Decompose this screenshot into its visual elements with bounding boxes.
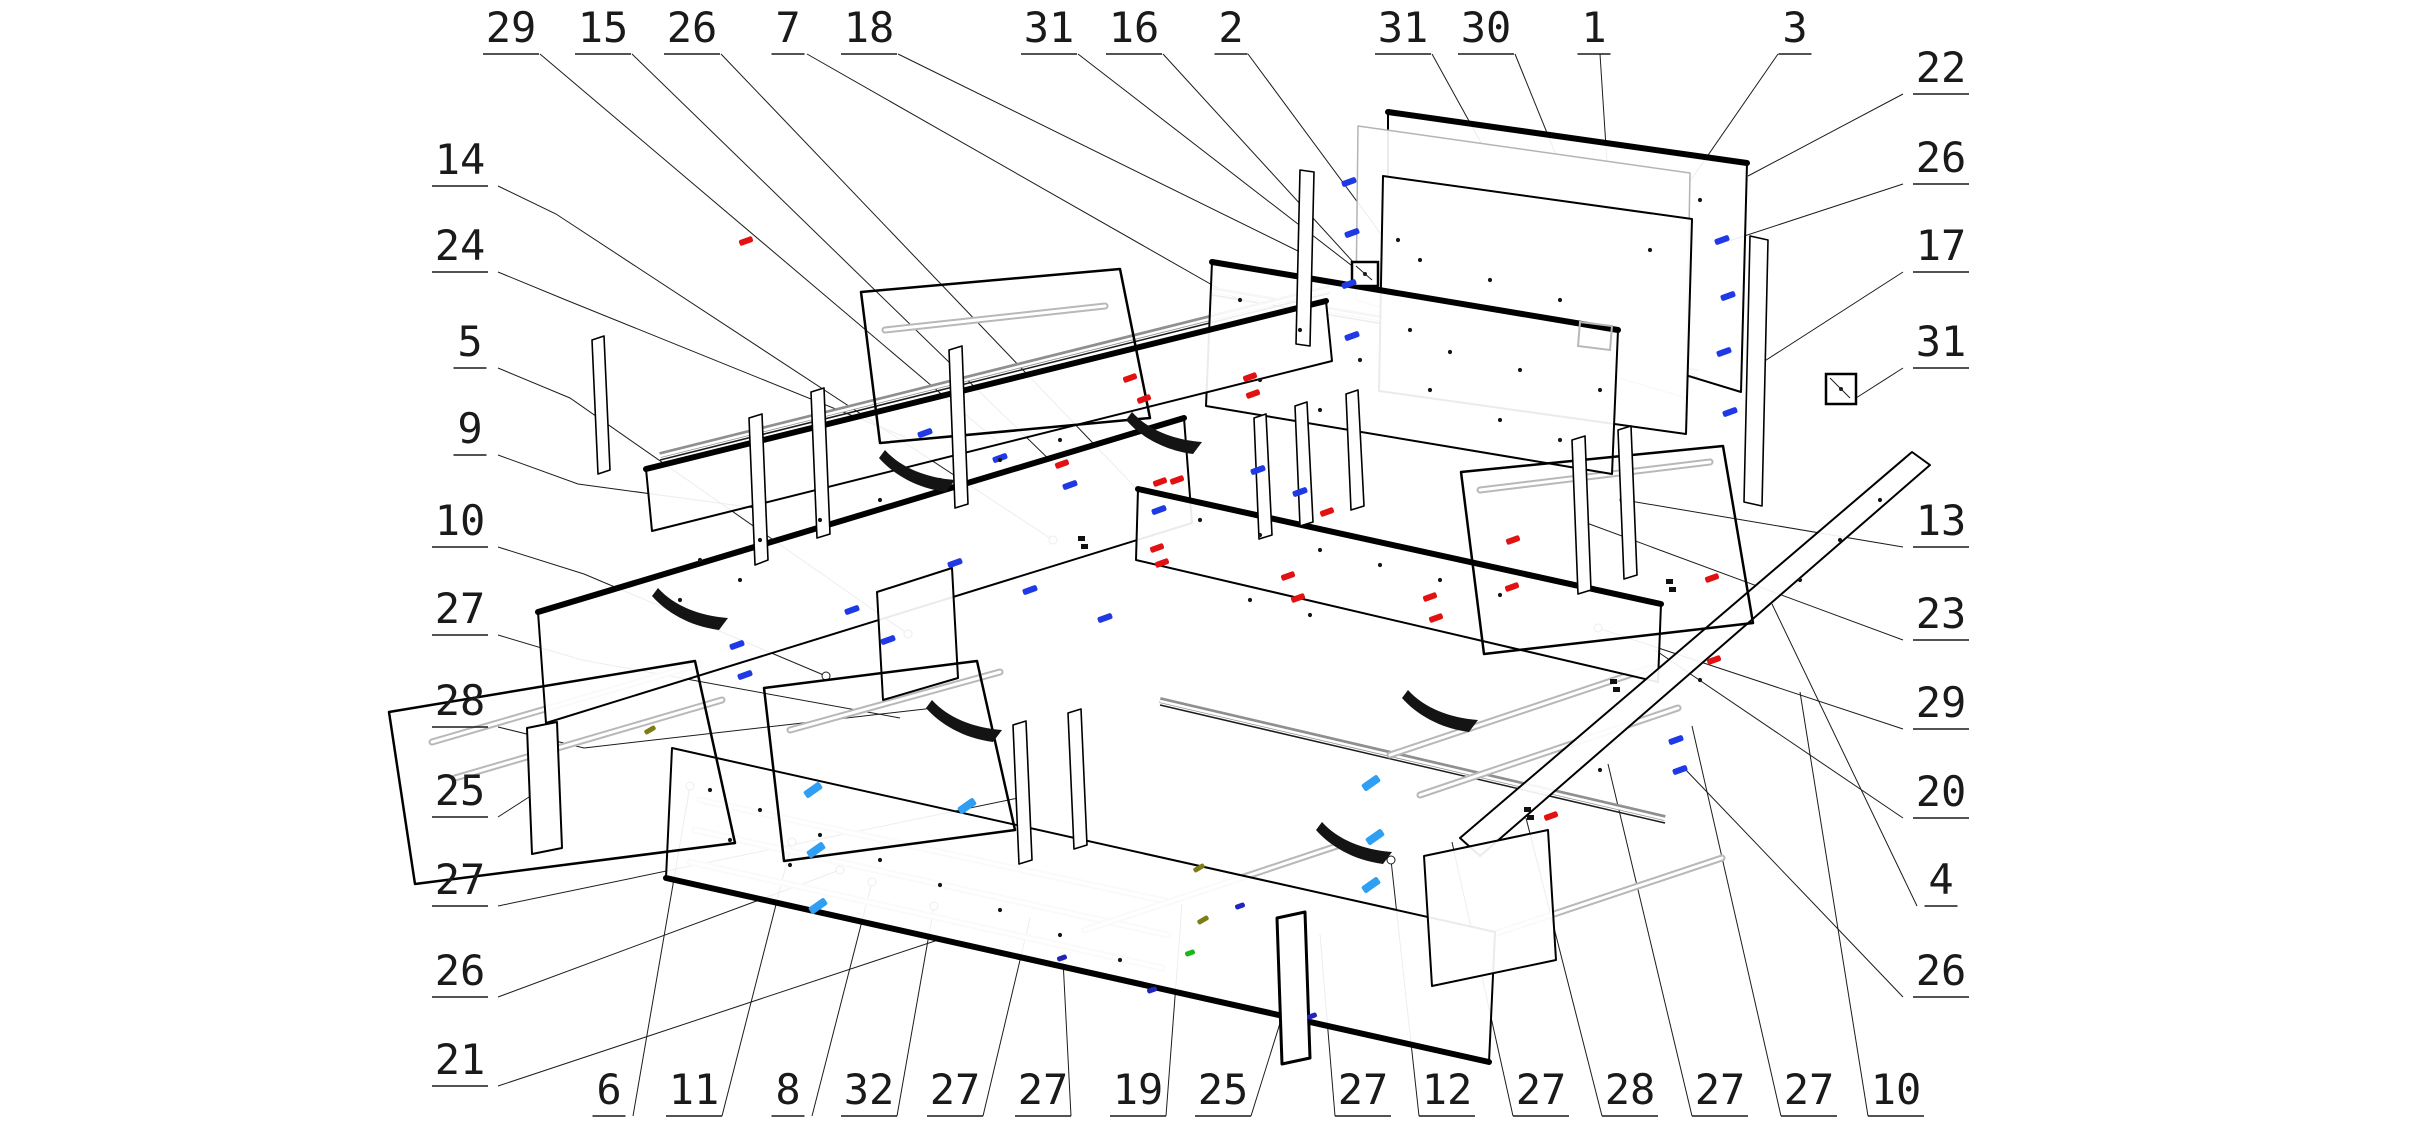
screw-hole-dot xyxy=(1408,328,1412,332)
screw-hole-dot xyxy=(998,908,1002,912)
part-number-label-27: 27 xyxy=(1695,1065,1746,1114)
clip-red xyxy=(1704,573,1719,583)
screw-hole-dot xyxy=(1558,298,1562,302)
screw-hole-dot xyxy=(1438,578,1442,582)
right-low-panel xyxy=(1424,830,1556,986)
leader-line-31 xyxy=(1856,368,1903,398)
screw-hole-dot xyxy=(758,808,762,812)
inner-divider-panel xyxy=(877,568,958,700)
part-number-label-11: 11 xyxy=(669,1065,720,1114)
part-number-label-9: 9 xyxy=(457,404,482,453)
leader-line-10 xyxy=(1800,692,1868,1116)
screw-hole-dot xyxy=(878,498,882,502)
side-strip-left xyxy=(527,722,562,854)
clip-blue xyxy=(1097,613,1113,624)
leader-line-22 xyxy=(1748,94,1903,176)
part-number-label-31: 31 xyxy=(1024,3,1075,52)
screw-hole-dot xyxy=(1318,408,1322,412)
screw-hole-dot xyxy=(1308,613,1312,617)
leader-line-18 xyxy=(898,54,1300,252)
bracket-plate-hole xyxy=(1839,387,1843,391)
screw-hole-dot xyxy=(1058,438,1062,442)
leader-end-circle xyxy=(1387,856,1395,864)
part-number-label-27: 27 xyxy=(1018,1065,1069,1114)
screw-hole-dot xyxy=(1598,768,1602,772)
clip-blue xyxy=(1341,177,1357,188)
screw-hole-dot xyxy=(1838,538,1842,542)
part-number-label-25: 25 xyxy=(1198,1065,1249,1114)
screw-hole-dot xyxy=(1798,578,1802,582)
part-number-label-3: 3 xyxy=(1782,3,1807,52)
part-number-label-26: 26 xyxy=(1916,946,1967,995)
screw-hole-dot xyxy=(1118,958,1122,962)
part-number-label-12: 12 xyxy=(1422,1065,1473,1114)
clip-light-blue xyxy=(1361,876,1381,893)
clip-light-blue xyxy=(1365,828,1385,845)
fitting-pair xyxy=(1524,807,1531,812)
part-number-label-7: 7 xyxy=(775,3,800,52)
screw-hole-dot xyxy=(1198,518,1202,522)
fitting-pair xyxy=(1527,815,1534,820)
part-number-label-20: 20 xyxy=(1916,767,1967,816)
screw-hole-dot xyxy=(728,838,732,842)
screw-hole-dot xyxy=(938,883,942,887)
clip-light-blue xyxy=(957,797,977,814)
screw-hole-dot xyxy=(1488,278,1492,282)
part-number-label-2: 2 xyxy=(1218,3,1243,52)
part-number-label-25: 25 xyxy=(435,766,486,815)
clip-red xyxy=(1505,535,1520,545)
rail-band-edge xyxy=(1160,705,1665,823)
fitting-pair xyxy=(1666,579,1673,584)
screw-hole-dot xyxy=(998,458,1002,462)
part-number-label-10: 10 xyxy=(1871,1065,1922,1114)
screw-hole-dot xyxy=(1298,328,1302,332)
screw-hole-dot xyxy=(1378,563,1382,567)
part-number-label-26: 26 xyxy=(667,3,718,52)
clip-blue xyxy=(1672,765,1688,776)
divider-strip xyxy=(1618,426,1637,579)
screw-hole-dot xyxy=(1498,418,1502,422)
screw-hole-dot xyxy=(738,578,742,582)
screw-hole-dot xyxy=(1418,258,1422,262)
part-number-label-27: 27 xyxy=(930,1065,981,1114)
clip-light-blue xyxy=(1361,774,1381,791)
part-number-label-27: 27 xyxy=(435,855,486,904)
right-side-panel xyxy=(1460,452,1930,856)
screw-hole-dot xyxy=(938,478,942,482)
part-number-label-32: 32 xyxy=(844,1065,895,1114)
drawer-slide-inner xyxy=(885,306,1105,330)
corner-brace xyxy=(1402,690,1478,732)
screw-hole-dot xyxy=(1448,350,1452,354)
part-number-label-18: 18 xyxy=(844,3,895,52)
corner-brace xyxy=(1316,822,1392,864)
part-number-label-27: 27 xyxy=(1516,1065,1567,1114)
part-number-label-30: 30 xyxy=(1461,3,1512,52)
screw-hole-dot xyxy=(1248,598,1252,602)
part-number-label-16: 16 xyxy=(1109,3,1160,52)
part-number-label-24: 24 xyxy=(435,221,486,270)
fitting-pair xyxy=(1613,687,1620,692)
part-number-label-19: 19 xyxy=(1113,1065,1164,1114)
part-number-label-1: 1 xyxy=(1581,3,1606,52)
leader-line-24 xyxy=(498,272,905,437)
screw-hole-dot xyxy=(1878,498,1882,502)
clip-blue xyxy=(1668,735,1684,746)
part-number-label-17: 17 xyxy=(1916,221,1967,270)
screw-hole-dot xyxy=(1238,298,1242,302)
part-number-label-10: 10 xyxy=(435,496,486,545)
headboard-right-strip xyxy=(1744,236,1768,506)
part-number-label-15: 15 xyxy=(578,3,629,52)
screw-hole-dot xyxy=(818,518,822,522)
diagram-canvas: 2915267183116231301322261731132329204261… xyxy=(0,0,2412,1134)
part-number-label-31: 31 xyxy=(1378,3,1429,52)
screw-hole-dot xyxy=(1428,388,1432,392)
clip-red xyxy=(1543,811,1558,821)
divider-strip xyxy=(1068,709,1087,849)
clip-olive xyxy=(644,725,657,735)
leader-line-26 xyxy=(1684,768,1903,997)
screw-hole-dot xyxy=(1396,238,1400,242)
part-number-label-26: 26 xyxy=(435,946,486,995)
screw-hole-dot xyxy=(1598,388,1602,392)
clip-red xyxy=(738,236,753,246)
screw-hole-dot xyxy=(1648,248,1652,252)
leader-line-26 xyxy=(1726,184,1903,242)
leader-line-7 xyxy=(807,54,1242,302)
screw-hole-dot xyxy=(1258,533,1262,537)
screw-hole-dot xyxy=(1698,198,1702,202)
part-number-label-31: 31 xyxy=(1916,317,1967,366)
part-number-label-23: 23 xyxy=(1916,589,1967,638)
screw-hole-dot xyxy=(1518,368,1522,372)
screw-hole-dot xyxy=(1258,378,1262,382)
part-number-label-28: 28 xyxy=(1605,1065,1656,1114)
part-number-label-5: 5 xyxy=(457,317,482,366)
fitting-pair xyxy=(1610,679,1617,684)
screw-hole-dot xyxy=(788,863,792,867)
clip-red xyxy=(1319,507,1334,517)
clip-blue xyxy=(1022,585,1038,596)
side-strip-dark xyxy=(1277,912,1310,1064)
screw-hole-dot xyxy=(758,538,762,542)
part-number-label-4: 4 xyxy=(1928,855,1953,904)
fitting-pair xyxy=(1078,536,1085,541)
part-number-label-13: 13 xyxy=(1916,496,1967,545)
fitting-pair xyxy=(1081,544,1088,549)
part-number-label-26: 26 xyxy=(1916,133,1967,182)
screw-hole-dot xyxy=(1698,678,1702,682)
part-number-label-6: 6 xyxy=(596,1065,621,1114)
fitting-pair xyxy=(1669,587,1676,592)
screw-hole-dot xyxy=(818,833,822,837)
part-number-label-14: 14 xyxy=(435,135,486,184)
part-number-label-22: 22 xyxy=(1916,43,1967,92)
part-number-label-29: 29 xyxy=(486,3,537,52)
screw-hole-dot xyxy=(1058,933,1062,937)
leader-line-4 xyxy=(1772,604,1917,906)
exploded-assembly-diagram: 2915267183116231301322261731132329204261… xyxy=(0,0,2412,1134)
screw-hole-dot xyxy=(708,788,712,792)
leader-line-20 xyxy=(1655,650,1903,818)
part-number-label-8: 8 xyxy=(775,1065,800,1114)
screw-hole-dot xyxy=(1318,548,1322,552)
part-number-label-27: 27 xyxy=(435,584,486,633)
leader-line-17 xyxy=(1760,272,1903,364)
part-number-label-21: 21 xyxy=(435,1035,486,1084)
part-number-label-27: 27 xyxy=(1338,1065,1389,1114)
bracket-plate-hole xyxy=(1363,272,1367,276)
screw-hole-dot xyxy=(678,598,682,602)
screw-hole-dot xyxy=(1358,358,1362,362)
screw-hole-dot xyxy=(698,558,702,562)
screw-hole-dot xyxy=(1498,593,1502,597)
headboard-left-strip xyxy=(1296,170,1314,346)
divider-strip xyxy=(592,336,610,474)
clip-blue xyxy=(737,670,753,681)
screw-hole-dot xyxy=(1558,438,1562,442)
leader-line-27 xyxy=(1692,726,1781,1116)
part-number-label-27: 27 xyxy=(1784,1065,1835,1114)
part-number-label-29: 29 xyxy=(1916,678,1967,727)
assembly-drawing-svg: 2915267183116231301322261731132329204261… xyxy=(0,0,2412,1134)
screw-hole-dot xyxy=(878,858,882,862)
clip-blue xyxy=(1722,407,1738,418)
part-number-label-28: 28 xyxy=(435,676,486,725)
